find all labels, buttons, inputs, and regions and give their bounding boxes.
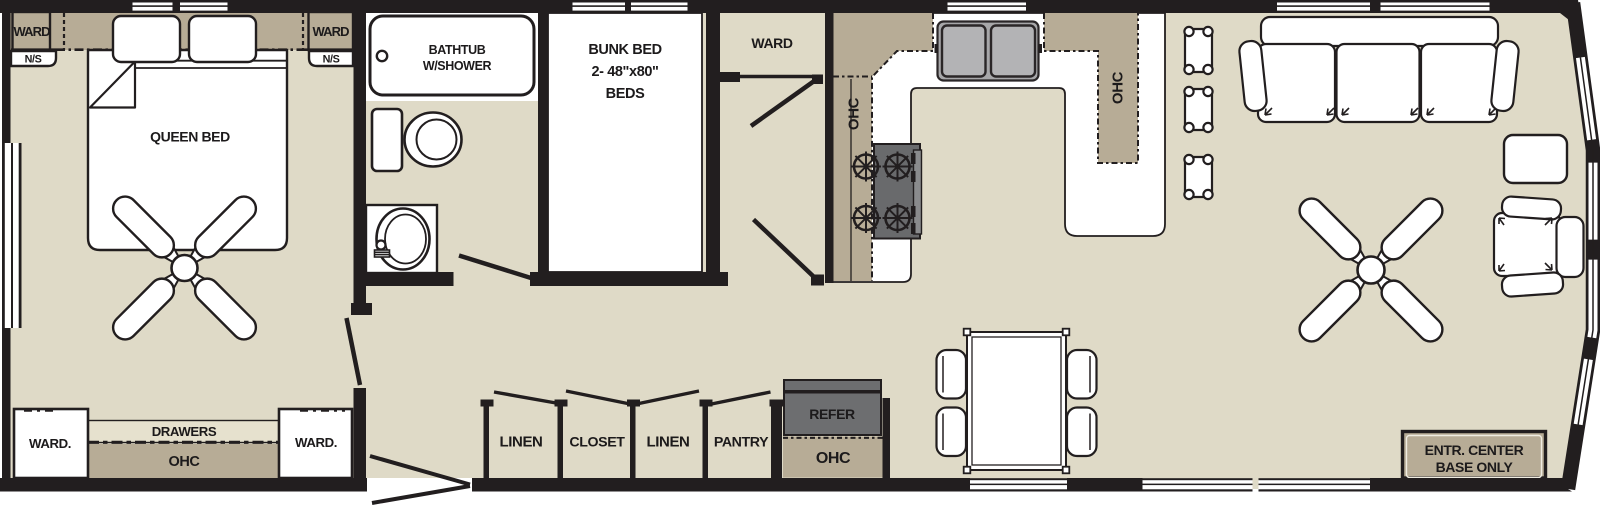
svg-text:QUEEN BED: QUEEN BED [150, 129, 230, 145]
svg-text:BASE ONLY: BASE ONLY [1436, 459, 1514, 475]
svg-text:2- 48"x80": 2- 48"x80" [592, 64, 659, 80]
svg-text:WARD: WARD [13, 24, 50, 39]
svg-text:WARD.: WARD. [29, 436, 71, 451]
svg-text:BATHTUB: BATHTUB [429, 43, 486, 57]
svg-text:OHC: OHC [816, 450, 851, 467]
svg-text:N/S: N/S [25, 54, 42, 66]
svg-text:BEDS: BEDS [606, 86, 645, 102]
svg-text:LINEN: LINEN [646, 434, 689, 451]
svg-text:WARD: WARD [751, 35, 792, 51]
svg-text:PANTRY: PANTRY [714, 435, 769, 451]
svg-text:WARD.: WARD. [295, 435, 337, 450]
svg-text:WARD: WARD [312, 24, 349, 39]
svg-text:DRAWERS: DRAWERS [152, 424, 217, 439]
svg-text:CLOSET: CLOSET [569, 435, 625, 451]
svg-text:OHC: OHC [1110, 71, 1127, 104]
svg-text:W/SHOWER: W/SHOWER [423, 59, 492, 73]
svg-text:OHC: OHC [168, 454, 200, 470]
svg-text:BUNK BED: BUNK BED [588, 42, 661, 58]
svg-text:OHC: OHC [846, 97, 863, 130]
svg-text:REFER: REFER [809, 406, 855, 422]
svg-text:N/S: N/S [323, 54, 340, 66]
svg-text:LINEN: LINEN [499, 434, 542, 451]
svg-text:ENTR. CENTER: ENTR. CENTER [1425, 442, 1524, 458]
